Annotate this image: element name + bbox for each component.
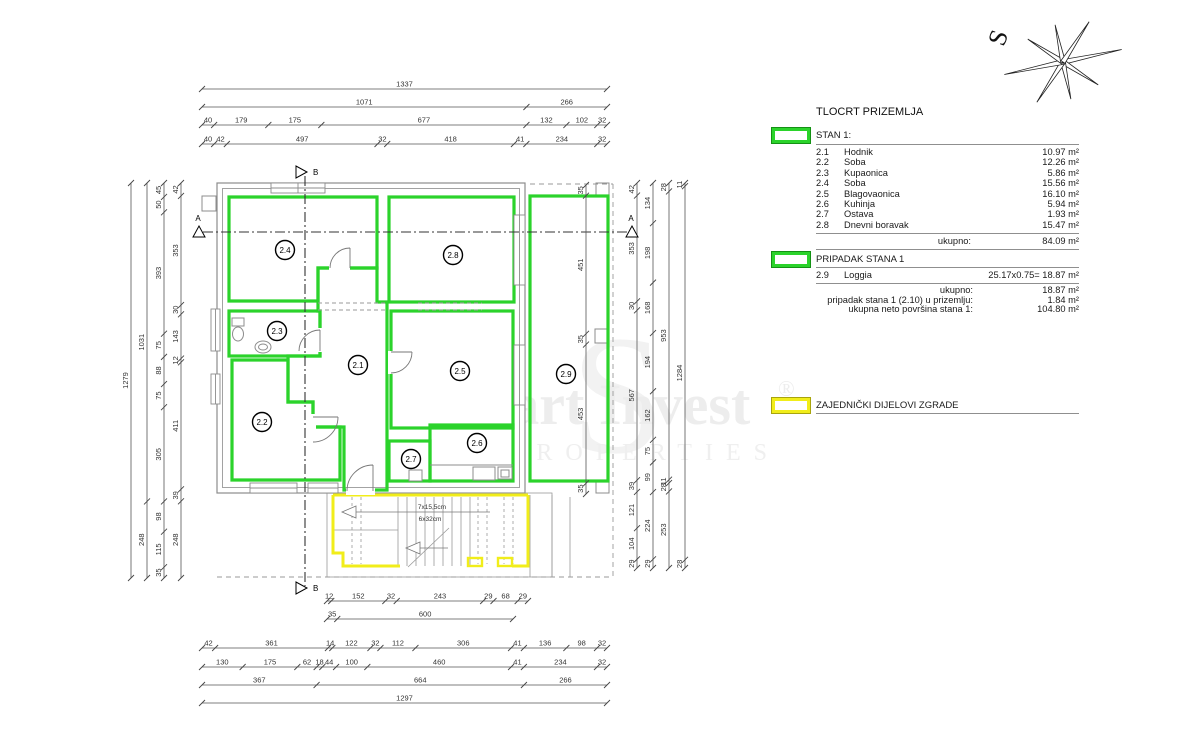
stan1-total-label: ukupno:: [816, 235, 979, 247]
dim-label: 40: [204, 135, 212, 144]
dim-label: 266: [559, 676, 572, 685]
dim-label: 152: [352, 592, 365, 601]
section-marker-a: A: [193, 214, 205, 237]
loggia-pillar-top: [596, 183, 609, 196]
dim-label: 18: [315, 658, 323, 667]
dim-label: 162: [643, 409, 652, 422]
dim-label: 41: [513, 639, 521, 648]
pripadak-summary: ukupno:18.87 m²pripadak stana 1 (2.10) u…: [816, 286, 1079, 315]
zajednicki-header: ZAJEDNIČKI DIJELOVI ZGRADE: [816, 400, 959, 411]
dim-label: 35: [154, 568, 163, 576]
dim-label: 175: [264, 658, 277, 667]
dim-label: 42: [627, 185, 636, 193]
room-area: 16.10 m²: [1042, 189, 1079, 199]
zajednicki-swatch-icon: [772, 398, 810, 413]
room-code: 2.3: [816, 168, 844, 178]
dim-label: 122: [345, 639, 358, 648]
dim-label: 411: [171, 420, 180, 432]
dim-chain: 35600: [324, 610, 516, 623]
room-label-2-9: 2.9: [557, 365, 576, 384]
dim-label: 112: [392, 639, 404, 648]
dim-label: 115: [154, 543, 163, 555]
section-letter: B: [313, 584, 318, 593]
room-label-2-5: 2.5: [451, 362, 470, 381]
dim-label: 121: [627, 504, 636, 517]
room-number-text: 2.7: [405, 455, 417, 464]
dim-label: 29: [627, 559, 636, 567]
room-number-text: 2.5: [454, 367, 466, 376]
dim-label: 248: [137, 533, 146, 546]
stan1-total-value: 84.09 m²: [979, 235, 1079, 247]
dim-label: 266: [560, 98, 573, 107]
dim-label: 30: [171, 306, 180, 314]
legend-panel: TLOCRT PRIZEMLJA STAN 1: 2.1Hodnik10.97 …: [760, 102, 1085, 432]
dim-label: 600: [419, 610, 432, 619]
legend-room-row: 2.5Blagovaonica16.10 m²: [816, 189, 1079, 199]
legend-room-row: 2.7Ostava1.93 m²: [816, 209, 1079, 219]
room-name: Dnevni boravak: [844, 220, 1042, 230]
dim-label: 32: [378, 135, 386, 144]
dim-chain: 1031248: [137, 180, 150, 581]
dim-label: 497: [296, 135, 309, 144]
rule: [816, 233, 1079, 234]
dim-label: 62: [303, 658, 311, 667]
dim-chain: 4042497324184123432: [199, 135, 610, 148]
legend-room-row: 2.8Dnevni boravak15.47 m²: [816, 220, 1079, 230]
dim-label: 179: [235, 116, 248, 125]
dim-chain: 1215232243296829: [324, 592, 531, 605]
legend-room-row: 2.2Soba12.26 m²: [816, 157, 1079, 167]
room-label-2-6: 2.6: [468, 434, 487, 453]
room-name: Kuhinja: [844, 199, 1047, 209]
room-number-text: 2.9: [560, 370, 572, 379]
room-area: 10.97 m²: [1042, 147, 1079, 157]
dim-label: 305: [154, 448, 163, 461]
dim-label: 353: [627, 242, 636, 255]
loggia-calc: 25.17x0.75= 18.87 m²: [988, 270, 1079, 280]
room-number-text: 2.2: [256, 418, 268, 427]
dim-label: 418: [444, 135, 457, 144]
rule: [816, 413, 1079, 414]
dim-label: 35: [328, 610, 336, 619]
dim-label: 100: [345, 658, 358, 667]
room-label-2-3: 2.3: [268, 322, 287, 341]
dim-label: 28: [659, 483, 668, 491]
room-name: Soba: [844, 157, 1042, 167]
staircase-structure: [327, 493, 570, 577]
dim-label: 234: [556, 135, 569, 144]
room-name: Soba: [844, 178, 1042, 188]
stair-note-line2: 6x32cm: [419, 516, 442, 523]
dim-label: 98: [154, 512, 163, 520]
room-code: 2.2: [816, 157, 844, 167]
section-marker-b: B: [296, 582, 318, 594]
loggia-name: Loggia: [844, 270, 988, 280]
section-letter: B: [313, 168, 318, 177]
dim-label: 136: [539, 639, 552, 648]
dim-label: 12: [325, 592, 333, 601]
dim-label: 234: [554, 658, 567, 667]
dim-label: 12: [171, 356, 180, 364]
room-number-text: 2.1: [352, 361, 364, 370]
loggia-code: 2.9: [816, 270, 844, 280]
dim-label: 248: [171, 533, 180, 546]
dim-chain: 423611412232112306411369832: [199, 639, 610, 652]
rule: [816, 283, 1079, 284]
dim-label: 453: [576, 408, 585, 421]
dim-label: 75: [154, 391, 163, 399]
rule: [816, 267, 1079, 268]
dim-label: 1279: [121, 372, 130, 389]
dim-label: 35: [576, 484, 585, 492]
room-number-text: 2.3: [271, 327, 283, 336]
room-label-2-2: 2.2: [253, 413, 272, 432]
room-label-2-8: 2.8: [444, 246, 463, 265]
dim-label: 32: [598, 658, 606, 667]
floor-plan-sheet: S Smart Invest ® PROPERTIES: [0, 0, 1200, 745]
stair-note-line1: 7x15,5cm: [418, 504, 446, 511]
section-letter: A: [628, 214, 634, 223]
dim-label: 45: [154, 186, 163, 194]
dim-label: 1031: [137, 334, 146, 351]
pripadak-header: PRIPADAK STANA 1: [816, 254, 904, 265]
dim-label: 243: [434, 592, 447, 601]
dim-label: 11: [675, 181, 684, 189]
dim-label: 306: [457, 639, 470, 648]
stan1-swatch-icon: [772, 128, 810, 143]
dim-label: 68: [501, 592, 509, 601]
dim-label: 130: [216, 658, 229, 667]
toilet-icon: [233, 327, 244, 341]
dim-label: 39: [627, 482, 636, 490]
dim-label: 102: [576, 116, 589, 125]
dim-label: 1297: [396, 694, 413, 703]
dim-label: 460: [433, 658, 446, 667]
room-number-text: 2.8: [447, 251, 459, 260]
room-area: 5.86 m²: [1047, 168, 1079, 178]
dim-label: 353: [171, 244, 180, 257]
sink-drain: [259, 344, 268, 350]
dim-label: 953: [659, 329, 668, 342]
dim-label: 451: [576, 259, 585, 272]
dim-label: 198: [643, 247, 652, 260]
dim-chain: 367664266: [199, 676, 610, 689]
summary-value: 104.80 m²: [973, 305, 1079, 315]
dim-label: 75: [643, 447, 652, 455]
dim-label: 567: [627, 389, 636, 402]
rule: [816, 249, 1079, 250]
dim-label: 42: [204, 639, 212, 648]
legend-room-row: 2.3Kupaonica5.86 m²: [816, 168, 1079, 178]
dim-label: 50: [154, 200, 163, 208]
stair-direction-arrow: [342, 506, 356, 518]
dim-label: 98: [578, 639, 586, 648]
room-number-text: 2.4: [279, 246, 291, 255]
stove-icon: [473, 467, 495, 480]
dim-label: 32: [598, 639, 606, 648]
dim-label: 367: [253, 676, 266, 685]
section-marker-a: A: [626, 214, 638, 237]
dim-label: 143: [171, 330, 180, 343]
room-area: 1.93 m²: [1047, 209, 1079, 219]
section-arrow-icon: [296, 582, 307, 594]
dim-label: 194: [643, 356, 652, 369]
dim-label: 393: [154, 267, 163, 280]
dim-label: 29: [519, 592, 527, 601]
dim-label: 14: [326, 639, 334, 648]
room-code: 2.8: [816, 220, 844, 230]
section-arrow-icon: [626, 226, 638, 237]
pripadak-swatch-icon: [772, 252, 810, 267]
legend-room-row: 2.6Kuhinja5.94 m²: [816, 199, 1079, 209]
toilet-tank: [232, 318, 244, 326]
dim-chain: 1279: [121, 180, 134, 581]
room-area: 5.94 m²: [1047, 199, 1079, 209]
dim-label: 29: [484, 592, 492, 601]
dim-chain: 4017917567713210232: [199, 116, 610, 129]
drawing-title: TLOCRT PRIZEMLJA: [816, 106, 923, 118]
room-code: 2.6: [816, 199, 844, 209]
dim-label: 361: [265, 639, 278, 648]
loggia-row: 2.9 Loggia 25.17x0.75= 18.87 m²: [816, 270, 1079, 280]
dim-label: 32: [598, 135, 606, 144]
legend-room-row: 2.4Soba15.56 m²: [816, 178, 1079, 188]
dim-label: 28: [675, 560, 684, 568]
dim-chain: 1297: [199, 694, 610, 707]
dim-label: 32: [598, 116, 606, 125]
legend-summary-row: ukupna neto površina stana 1:104.80 m²: [816, 305, 1079, 315]
room-name: Ostava: [844, 209, 1047, 219]
dim-chain: 42353301431241139248: [171, 180, 184, 581]
room-area: 12.26 m²: [1042, 157, 1079, 167]
dim-label: 28: [659, 183, 668, 191]
dim-chain: 1337: [199, 80, 610, 93]
dim-chain: 45503937588753059811535: [154, 180, 167, 581]
compass-star-icon: [1004, 22, 1121, 103]
room-code: 2.4: [816, 178, 844, 188]
dim-label: 132: [540, 116, 553, 125]
dim-label: 104: [627, 537, 636, 550]
dim-label: 1284: [675, 365, 684, 382]
summary-label: ukupna neto površina stana 1:: [816, 305, 973, 315]
stan1-room-table: 2.1Hodnik10.97 m²2.2Soba12.26 m²2.3Kupao…: [816, 147, 1079, 230]
room-label-2-7: 2.7: [402, 450, 421, 469]
dim-chain: 1071266: [199, 98, 610, 111]
dim-label: 99: [643, 473, 652, 481]
room-label-2-4: 2.4: [276, 241, 295, 260]
dim-label: 253: [659, 523, 668, 536]
dim-label: 41: [513, 658, 521, 667]
room-area: 15.56 m²: [1042, 178, 1079, 188]
dim-label: 29: [643, 559, 652, 567]
stan1-total-row: ukupno: 84.09 m²: [816, 235, 1079, 247]
dim-label: 175: [289, 116, 302, 125]
legend-room-row: 2.1Hodnik10.97 m²: [816, 147, 1079, 157]
room-name: Kupaonica: [844, 168, 1047, 178]
dim-label: 677: [418, 116, 431, 125]
dim-label: 224: [643, 519, 652, 532]
dim-label: 32: [387, 592, 395, 601]
room-code: 2.5: [816, 189, 844, 199]
dim-label: 1071: [356, 98, 373, 107]
dim-label: 42: [216, 135, 224, 144]
dim-label: 32: [371, 639, 379, 648]
room-name: Blagovaonica: [844, 189, 1042, 199]
dim-label: 35: [576, 335, 585, 343]
room-code: 2.1: [816, 147, 844, 157]
dim-label: 44: [325, 658, 333, 667]
compass-north-label: S: [982, 26, 1014, 50]
dim-label: 134: [643, 197, 652, 210]
dim-chain: 1301756218441004604123432: [199, 658, 610, 671]
dim-label: 664: [414, 676, 427, 685]
room-code: 2.7: [816, 209, 844, 219]
dim-label: 41: [516, 135, 524, 144]
chimney: [202, 196, 216, 211]
room-label-2-1: 2.1: [349, 356, 368, 375]
rule: [816, 144, 1079, 145]
dim-label: 168: [643, 302, 652, 315]
room-area: 15.47 m²: [1042, 220, 1079, 230]
room-number-text: 2.6: [471, 439, 483, 448]
storage-fixture: [409, 470, 422, 481]
dim-label: 88: [154, 366, 163, 374]
dim-label: 1337: [396, 80, 413, 89]
section-letter: A: [195, 214, 201, 223]
dim-label: 75: [154, 341, 163, 349]
dim-label: 42: [171, 185, 180, 193]
dim-label: 30: [627, 302, 636, 310]
compass: S: [982, 22, 1122, 103]
dim-label: 35: [576, 186, 585, 194]
section-marker-b: B: [296, 166, 318, 178]
dim-label: 39: [171, 491, 180, 499]
stan1-header: STAN 1:: [816, 130, 851, 141]
room-name: Hodnik: [844, 147, 1042, 157]
dim-label: 40: [204, 116, 212, 125]
